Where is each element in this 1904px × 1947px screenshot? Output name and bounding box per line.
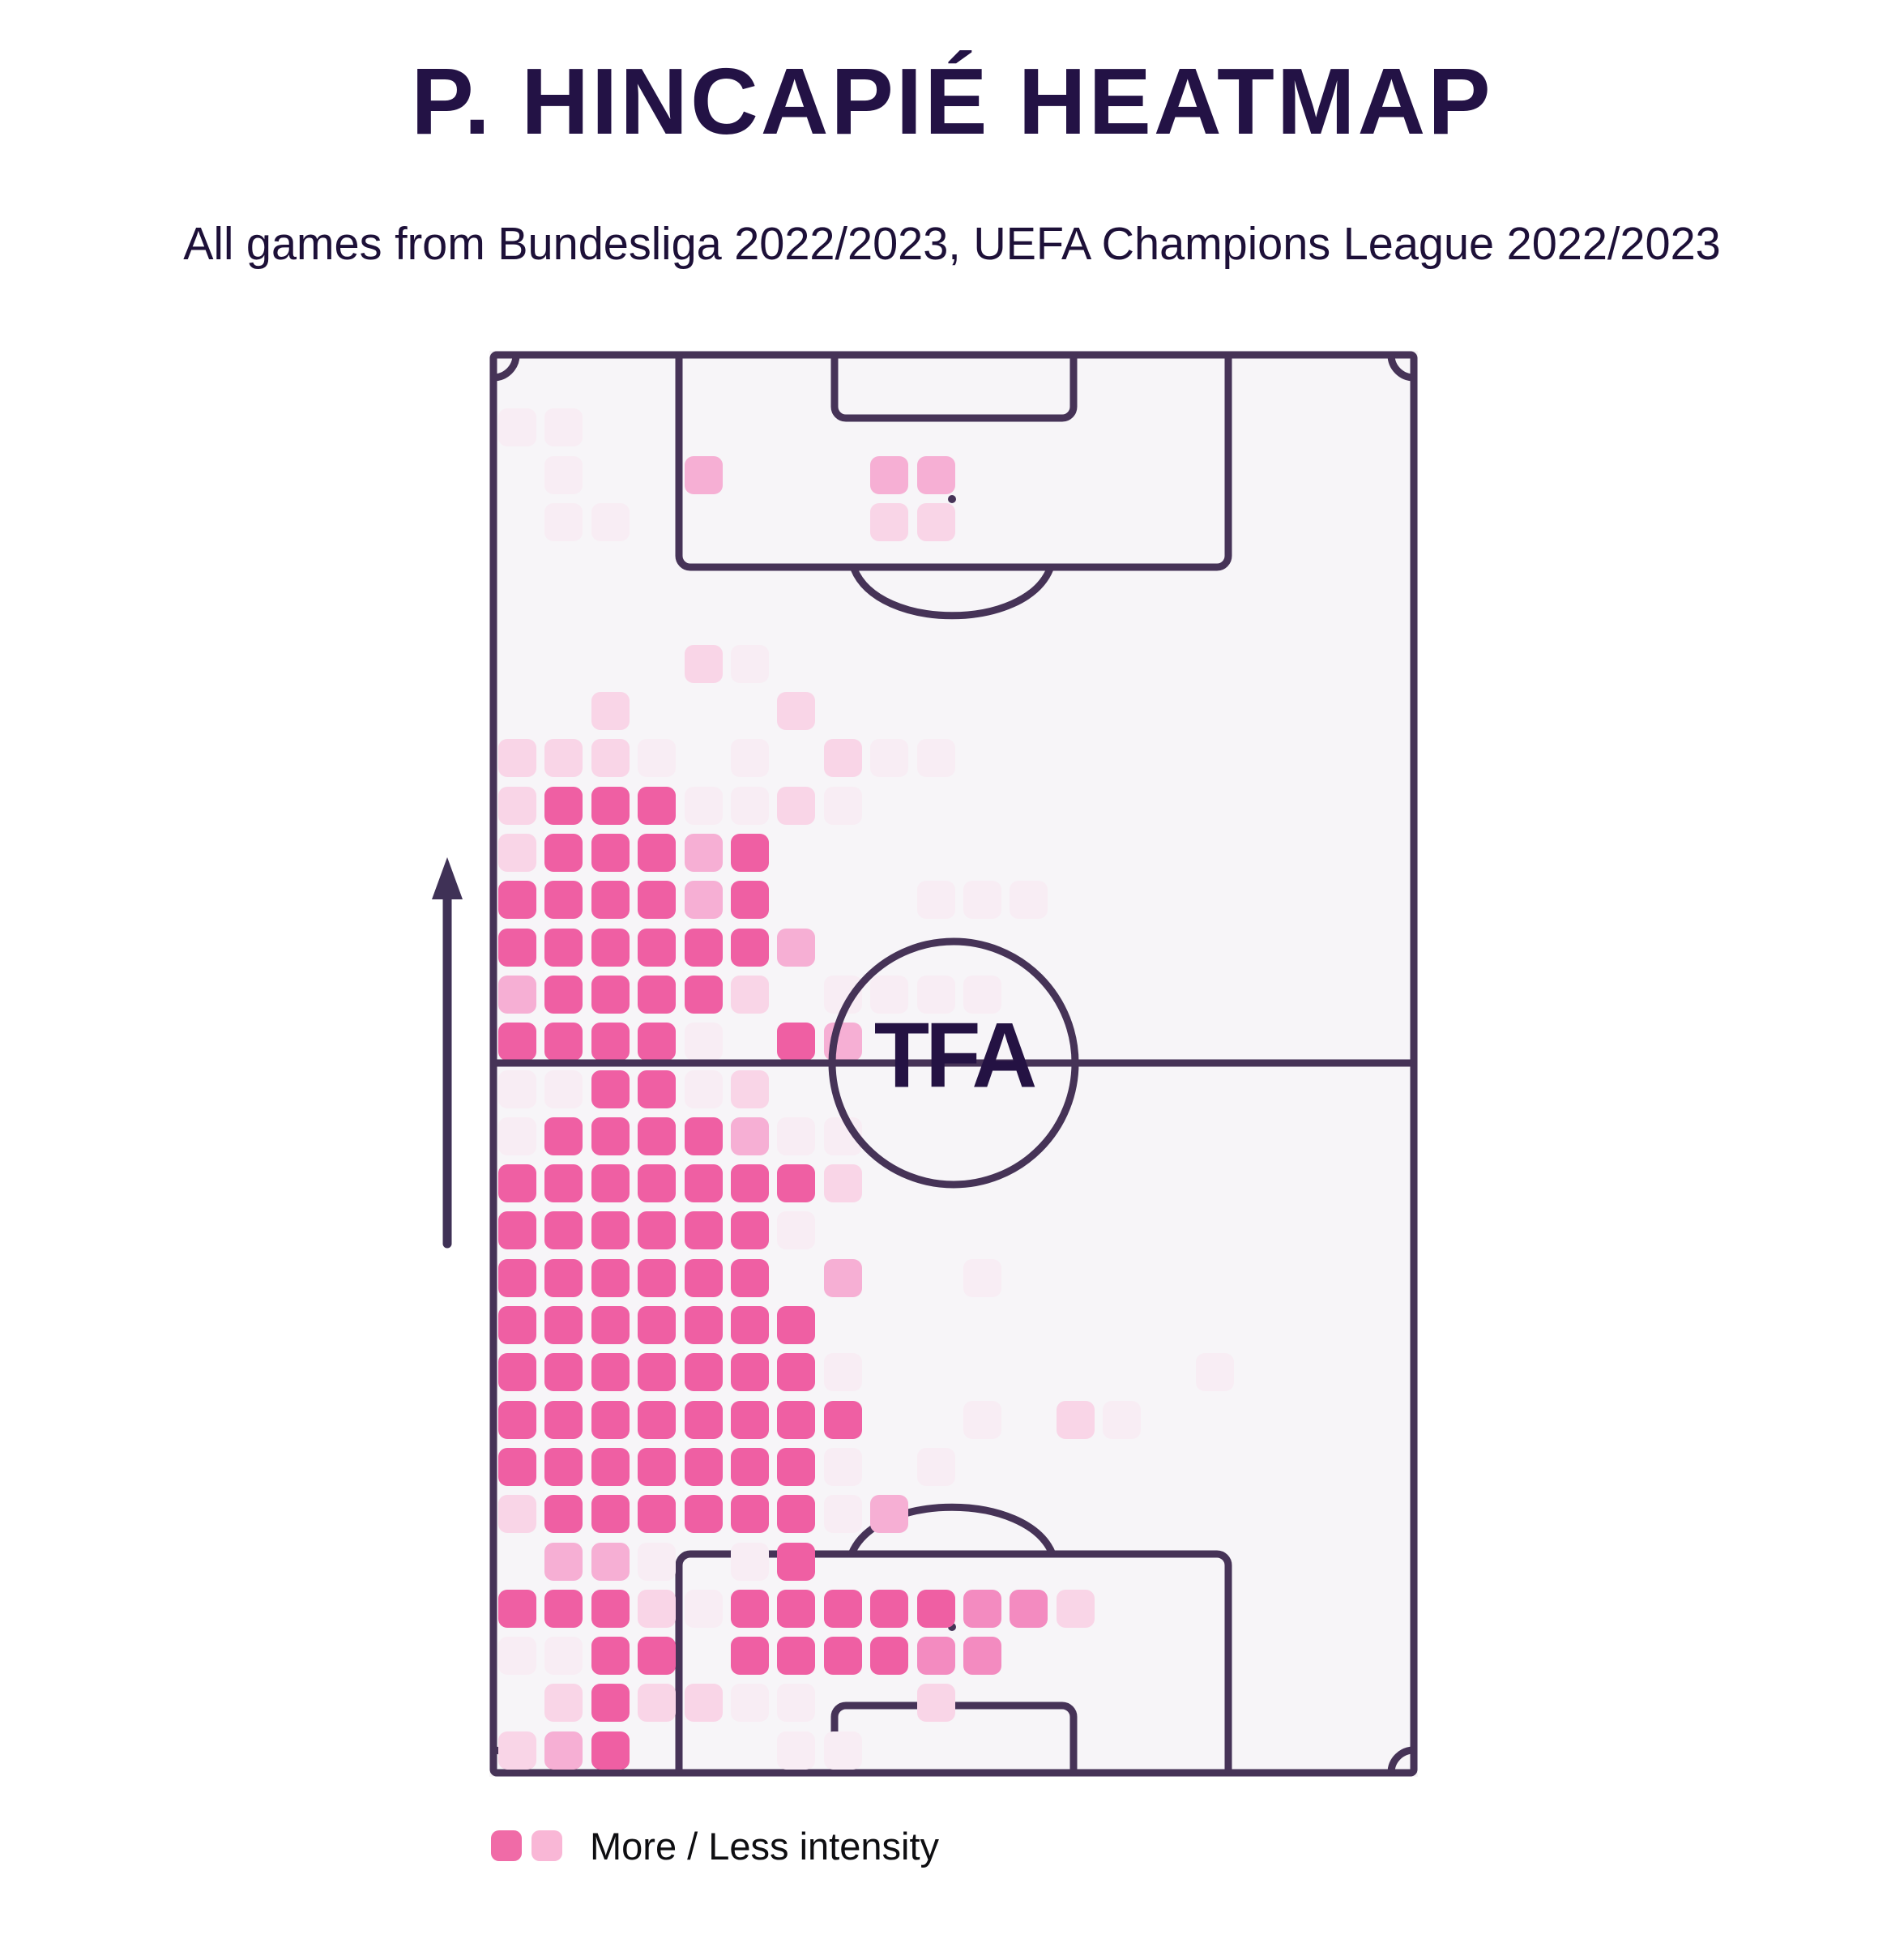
heatmap-cell xyxy=(544,1543,583,1581)
heatmap-cell xyxy=(544,1637,583,1675)
heatmap-cell xyxy=(870,1495,908,1533)
heatmap-cell xyxy=(638,1070,676,1108)
heatmap-cell xyxy=(498,1401,536,1439)
heatmap-cell xyxy=(870,503,908,541)
heatmap-cell xyxy=(731,739,769,777)
heatmap-cell xyxy=(591,929,630,967)
heatmap-cell xyxy=(731,1448,769,1486)
heatmap-cell xyxy=(498,1306,536,1344)
heatmap-cell xyxy=(498,408,536,446)
heatmap-cell xyxy=(777,1306,815,1344)
heatmap-cell xyxy=(544,1353,583,1391)
heatmap-cell xyxy=(685,1023,723,1061)
heatmap-cell xyxy=(824,1259,862,1297)
heatmap-cell xyxy=(591,1637,630,1675)
heatmap-cell xyxy=(1057,1590,1095,1628)
heatmap-cell xyxy=(685,456,723,494)
heatmap-cell xyxy=(870,739,908,777)
heatmap-cell xyxy=(685,1353,723,1391)
page-title: P. HINCAPIÉ HEATMAP xyxy=(0,47,1904,156)
heatmap-cell xyxy=(591,692,630,730)
heatmap-cell xyxy=(498,1070,536,1108)
heatmap-cell xyxy=(917,1637,955,1675)
heatmap-cell xyxy=(498,1448,536,1486)
arrow-head xyxy=(432,857,463,899)
heatmap-cell xyxy=(638,834,676,872)
heatmap-cell xyxy=(638,1495,676,1533)
heatmap-cell xyxy=(498,881,536,919)
heatmap-cell xyxy=(498,1164,536,1202)
heatmap-cell xyxy=(591,1023,630,1061)
heatmap-cell xyxy=(638,1448,676,1486)
heatmap-cell xyxy=(731,1117,769,1155)
heatmap-cell xyxy=(544,456,583,494)
heatmap-cell xyxy=(685,1259,723,1297)
heatmap-cell xyxy=(498,1117,536,1155)
heatmap-cell xyxy=(824,1637,862,1675)
heatmap-cell xyxy=(591,1590,630,1628)
heatmap-cell xyxy=(544,1211,583,1249)
heatmap-cell xyxy=(544,503,583,541)
heatmap-cell xyxy=(591,1259,630,1297)
heatmap-cell xyxy=(824,1164,862,1202)
heatmap-cell xyxy=(685,1448,723,1486)
heatmap-cell xyxy=(591,787,630,825)
heatmap-cell xyxy=(544,1590,583,1628)
football-pitch: TFA xyxy=(489,351,1418,1777)
heatmap-cell xyxy=(638,1259,676,1297)
heatmap-cell xyxy=(638,1023,676,1061)
heatmap-cell xyxy=(544,1684,583,1722)
heatmap-cell xyxy=(638,881,676,919)
heatmap-cell xyxy=(777,1401,815,1439)
heatmap-cell xyxy=(498,1731,536,1770)
heatmap-cell xyxy=(544,1117,583,1155)
heatmap-cell xyxy=(498,1590,536,1628)
heatmap-cell xyxy=(731,1495,769,1533)
heatmap-cell xyxy=(963,1401,1001,1439)
heatmap-cell xyxy=(591,1211,630,1249)
heatmap-cell xyxy=(824,739,862,777)
page-subtitle: All games from Bundesliga 2022/2023, UEF… xyxy=(19,217,1885,271)
heatmap-cell xyxy=(591,1684,630,1722)
heatmap-cell xyxy=(685,881,723,919)
heatmap-cell xyxy=(685,1590,723,1628)
heatmap-cell xyxy=(591,881,630,919)
heatmap-cell xyxy=(638,1164,676,1202)
heatmap-cell xyxy=(544,1495,583,1533)
heatmap-cell xyxy=(917,1684,955,1722)
heatmap-cell xyxy=(777,1731,815,1770)
heatmap-cell xyxy=(1010,881,1048,919)
heatmap-cell xyxy=(544,1070,583,1108)
tfa-logo: TFA xyxy=(824,1003,1083,1119)
heatmap-cell xyxy=(824,1495,862,1533)
heatmap-cell xyxy=(777,1023,815,1061)
heatmap-cell xyxy=(777,1590,815,1628)
heatmap-cell xyxy=(498,1495,536,1533)
heatmap-cell xyxy=(685,1495,723,1533)
heatmap-cell xyxy=(638,1637,676,1675)
heatmap-cell xyxy=(544,1164,583,1202)
heatmap-cell xyxy=(591,1543,630,1581)
heatmap-cell xyxy=(731,1070,769,1108)
heatmap-cell xyxy=(544,834,583,872)
heatmap-cell xyxy=(685,1306,723,1344)
heatmap-cell xyxy=(1057,1401,1095,1439)
attack-direction-arrow-icon xyxy=(429,849,465,1254)
heatmap-cell xyxy=(685,976,723,1014)
heatmap-cell xyxy=(498,1211,536,1249)
heatmap-cell xyxy=(591,1117,630,1155)
heatmap-cell xyxy=(544,976,583,1014)
heatmap-cell xyxy=(544,1401,583,1439)
heatmap-cell xyxy=(498,787,536,825)
heatmap-cell xyxy=(1103,1401,1141,1439)
heatmap-cell xyxy=(963,1259,1001,1297)
heatmap-cell xyxy=(544,929,583,967)
heatmap-cell xyxy=(777,929,815,967)
heatmap-cell xyxy=(638,1117,676,1155)
heatmap-cell xyxy=(1196,1353,1234,1391)
heatmap-cell xyxy=(498,1637,536,1675)
heatmap-cell xyxy=(544,408,583,446)
heatmap-cell xyxy=(638,739,676,777)
heatmap-cell xyxy=(498,976,536,1014)
heatmap-cell xyxy=(731,1211,769,1249)
heatmap-cell xyxy=(870,456,908,494)
heatmap-cell xyxy=(591,503,630,541)
heatmap-cell xyxy=(638,1684,676,1722)
heatmap-cell xyxy=(963,1590,1001,1628)
heatmap-cell xyxy=(685,1070,723,1108)
heatmap-cell xyxy=(544,1306,583,1344)
heatmap-cell xyxy=(824,1448,862,1486)
heatmap-cell xyxy=(731,1353,769,1391)
heatmap-cell xyxy=(824,1731,862,1770)
heatmap-cell xyxy=(824,1353,862,1391)
heatmap-cell xyxy=(731,1164,769,1202)
heatmap-cell xyxy=(777,1353,815,1391)
heatmap-cell xyxy=(638,1401,676,1439)
heatmap-cell xyxy=(731,976,769,1014)
heatmap-cell xyxy=(917,1590,955,1628)
heatmap-cell xyxy=(870,1590,908,1628)
heatmap-cell xyxy=(638,1543,676,1581)
heatmap-cell xyxy=(777,787,815,825)
heatmap-cell xyxy=(777,1164,815,1202)
heatmap-cell xyxy=(824,1590,862,1628)
heatmap-cell xyxy=(731,1306,769,1344)
heatmap-cell xyxy=(824,787,862,825)
heatmap-cell xyxy=(544,881,583,919)
heatmap-cell xyxy=(731,1590,769,1628)
intensity-legend: More / Less intensity xyxy=(491,1825,939,1867)
heatmap-cell xyxy=(777,1637,815,1675)
heatmap-cell xyxy=(685,787,723,825)
heatmap-cell xyxy=(731,1401,769,1439)
heatmap-cell xyxy=(685,929,723,967)
heatmap-cell xyxy=(963,881,1001,919)
heatmap-cell xyxy=(777,1684,815,1722)
heatmap-cell xyxy=(638,1306,676,1344)
heatmap-cell xyxy=(917,739,955,777)
heatmap-cell xyxy=(498,1259,536,1297)
heatmap-cell xyxy=(824,1401,862,1439)
heatmap-cell xyxy=(1010,1590,1048,1628)
heatmap-cell xyxy=(685,1211,723,1249)
heatmap-cell xyxy=(731,645,769,683)
heatmap-cell xyxy=(638,1211,676,1249)
heatmap-cell xyxy=(591,976,630,1014)
heatmap-cell xyxy=(544,1023,583,1061)
heatmap-cell xyxy=(685,1164,723,1202)
heatmap-cell xyxy=(638,929,676,967)
heatmap-cell xyxy=(917,881,955,919)
heatmap-cell xyxy=(685,1684,723,1722)
heatmap-cell xyxy=(731,929,769,967)
heatmap-cell xyxy=(544,1259,583,1297)
heatmap-cell xyxy=(498,1353,536,1391)
heatmap-cell xyxy=(731,787,769,825)
heatmap-cell xyxy=(591,1401,630,1439)
heatmap-cell xyxy=(591,1306,630,1344)
heatmap-cell xyxy=(544,1731,583,1770)
heatmap-cell xyxy=(638,1590,676,1628)
heatmap-cell xyxy=(777,692,815,730)
heatmap-cell xyxy=(917,456,955,494)
heatmap-cell xyxy=(591,1495,630,1533)
heatmap-cell xyxy=(731,1637,769,1675)
heatmap-cell xyxy=(591,739,630,777)
heatmap-cell xyxy=(591,1353,630,1391)
heatmap-cell xyxy=(498,1023,536,1061)
heatmap-cell xyxy=(963,1637,1001,1675)
heatmap-cell xyxy=(685,834,723,872)
legend-swatch-less xyxy=(531,1830,562,1861)
heatmap-cell xyxy=(731,881,769,919)
heatmap-cell xyxy=(917,503,955,541)
heatmap-cell xyxy=(685,1401,723,1439)
heatmap-cell xyxy=(544,787,583,825)
heatmap-cell xyxy=(917,1448,955,1486)
heatmap-cell xyxy=(638,787,676,825)
legend-swatch-more xyxy=(491,1830,522,1861)
heatmap-cell xyxy=(731,1684,769,1722)
heatmap-cell xyxy=(591,834,630,872)
heatmap-cell xyxy=(498,739,536,777)
heatmap-cell xyxy=(591,1164,630,1202)
heatmap-cell xyxy=(777,1543,815,1581)
heatmap-cell xyxy=(591,1731,630,1770)
heatmap-cell xyxy=(731,1259,769,1297)
heatmap-cell xyxy=(777,1211,815,1249)
heatmap-cell xyxy=(544,1448,583,1486)
heatmap-cell xyxy=(638,1353,676,1391)
heatmap-cell xyxy=(824,1117,862,1155)
heatmap-cell xyxy=(731,834,769,872)
heatmap-cell xyxy=(498,834,536,872)
heatmap-cell xyxy=(685,645,723,683)
heatmap-cell xyxy=(870,1637,908,1675)
heatmap-cell xyxy=(638,976,676,1014)
legend-label: More / Less intensity xyxy=(590,1824,939,1868)
heatmap-cell xyxy=(777,1448,815,1486)
heatmap-cell xyxy=(544,739,583,777)
heatmap-cell xyxy=(591,1070,630,1108)
heatmap-cell xyxy=(498,929,536,967)
heatmap-cell xyxy=(591,1448,630,1486)
heatmap-cell xyxy=(685,1117,723,1155)
heatmap-cell xyxy=(731,1543,769,1581)
heatmap-cell xyxy=(777,1495,815,1533)
heatmap-cell xyxy=(777,1117,815,1155)
